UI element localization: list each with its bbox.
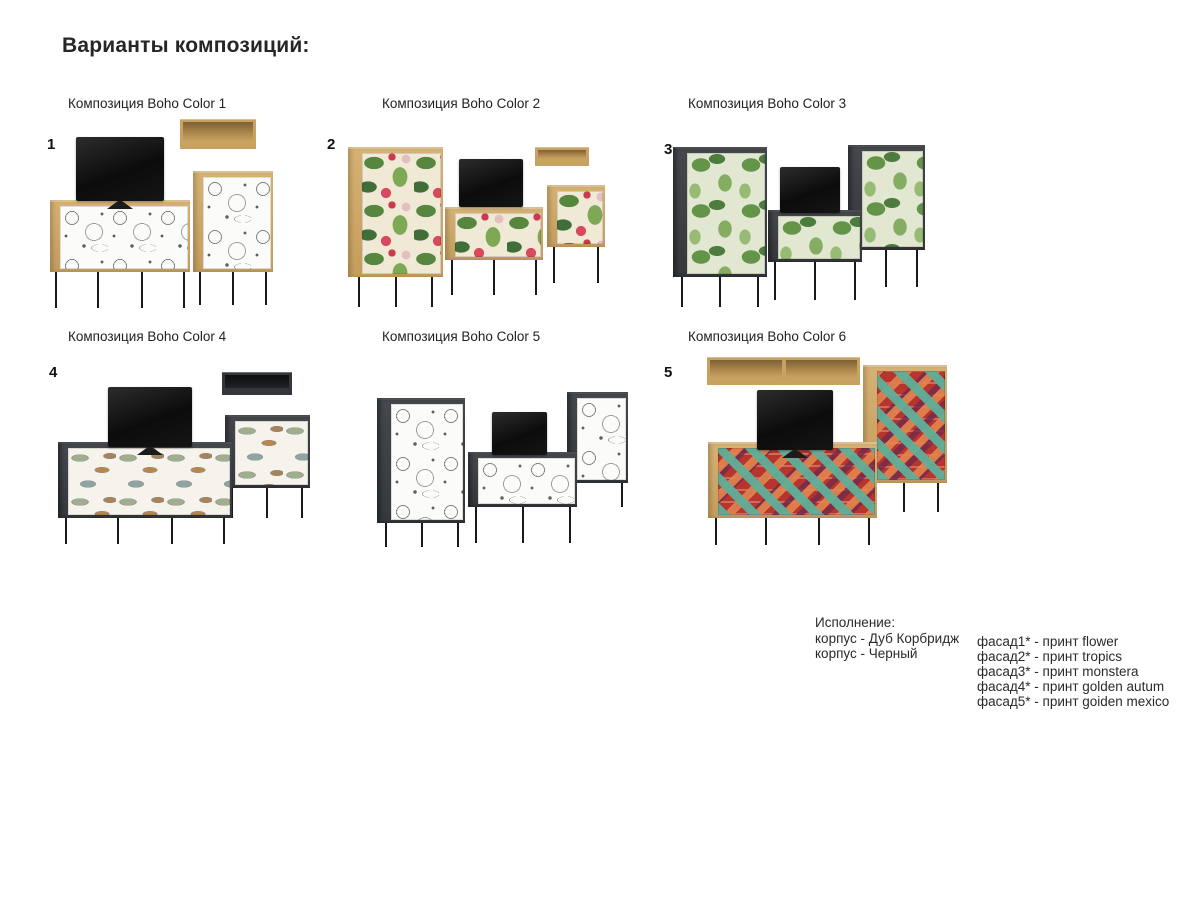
- sideboard: [468, 452, 577, 507]
- wall-shelf: [180, 119, 256, 149]
- shelf-interior: [225, 375, 289, 388]
- tv: [108, 387, 192, 447]
- tall-cabinet-legs: [573, 483, 623, 507]
- tall-cabinet: [673, 147, 767, 277]
- wall-shelf: [707, 357, 860, 385]
- tall-cabinet-legs: [385, 523, 459, 547]
- cabinet-legs: [231, 488, 303, 518]
- tall-cabinet-front-print: [687, 153, 765, 274]
- wall-shelf: [222, 372, 292, 395]
- tv: [757, 390, 833, 450]
- tall-cabinet-legs: [869, 483, 939, 512]
- catalog-page: Варианты композиций: Композиция Boho Col…: [0, 0, 1201, 901]
- facade-legend: фасад1* - принт flower фасад2* - принт t…: [977, 634, 1169, 709]
- page-title: Варианты композиций:: [62, 34, 310, 58]
- composition-scene-5: [365, 350, 635, 550]
- composition-scene-6: [655, 350, 955, 550]
- cabinet-legs: [199, 272, 267, 305]
- tall-cabinet-front-print: [362, 153, 441, 274]
- composition-scene-2: [325, 115, 615, 310]
- sideboard-front-print: [718, 448, 875, 515]
- tall-cabinet: [348, 147, 443, 277]
- sideboard-legs: [475, 507, 571, 543]
- tall-cabinet-legs: [358, 277, 433, 307]
- tall-cabinet-front-print: [577, 398, 626, 480]
- shelf-interior: [183, 122, 253, 142]
- composition-5-label: Композиция Boho Color 5: [382, 329, 540, 344]
- legend-body-line: корпус - Дуб Корбридж: [815, 631, 959, 647]
- composition-3-label: Композиция Boho Color 3: [688, 96, 846, 111]
- wall-shelf: [535, 147, 589, 166]
- composition-1-label: Композиция Boho Color 1: [68, 96, 226, 111]
- sideboard: [768, 210, 862, 262]
- tall-cabinet-front-print: [877, 371, 945, 480]
- sideboard-front-print: [478, 458, 575, 504]
- sideboard: [50, 200, 190, 272]
- sideboard-front-print: [455, 213, 541, 257]
- composition-scene-4: [45, 350, 315, 550]
- shelf-interior: [538, 150, 586, 159]
- tall-cabinet-front-print: [862, 151, 923, 247]
- materials-legend: Исполнение: корпус - Дуб Корбридж корпус…: [815, 615, 959, 662]
- facade-line: фасад3* - принт monstera: [977, 664, 1169, 679]
- facade-line: фасад2* - принт tropics: [977, 649, 1169, 664]
- composition-2-label: Композиция Boho Color 2: [382, 96, 540, 111]
- sideboard-front-print: [68, 448, 230, 515]
- tall-cabinet: [377, 398, 465, 523]
- tall-cabinet-legs: [681, 277, 759, 307]
- composition-scene-3: [655, 115, 945, 310]
- sideboard-front-print: [60, 206, 188, 269]
- legend-title: Исполнение:: [815, 615, 959, 631]
- legend-body-line: корпус - Черный: [815, 646, 959, 662]
- sideboard: [445, 207, 543, 260]
- sideboard-legs: [451, 260, 537, 295]
- sideboard-legs: [774, 262, 856, 300]
- facade-line: фасад1* - принт flower: [977, 634, 1169, 649]
- facade-line: фасад5* - принт goiden mexico: [977, 694, 1169, 709]
- sideboard-front-print: [778, 216, 860, 259]
- tall-cabinet-legs: [854, 250, 918, 287]
- cabinet-front-print: [203, 177, 271, 269]
- cabinet: [225, 415, 310, 488]
- composition-4-label: Композиция Boho Color 4: [68, 329, 226, 344]
- tv: [459, 159, 523, 207]
- cabinet: [193, 171, 273, 272]
- tv: [492, 412, 547, 455]
- cabinet-front-print: [557, 191, 603, 244]
- tv: [76, 137, 164, 201]
- sideboard-legs: [65, 518, 225, 544]
- facade-line: фасад4* - принт golden autum: [977, 679, 1169, 694]
- sideboard-legs: [715, 518, 870, 545]
- sideboard-legs: [55, 272, 185, 308]
- tall-cabinet-front-print: [391, 404, 463, 520]
- shelf-divider: [782, 360, 786, 378]
- cabinet-front-print: [235, 421, 308, 485]
- cabinet-legs: [553, 247, 599, 283]
- cabinet: [547, 185, 605, 247]
- composition-scene-1: [45, 115, 280, 310]
- tv: [780, 167, 840, 213]
- composition-6-label: Композиция Boho Color 6: [688, 329, 846, 344]
